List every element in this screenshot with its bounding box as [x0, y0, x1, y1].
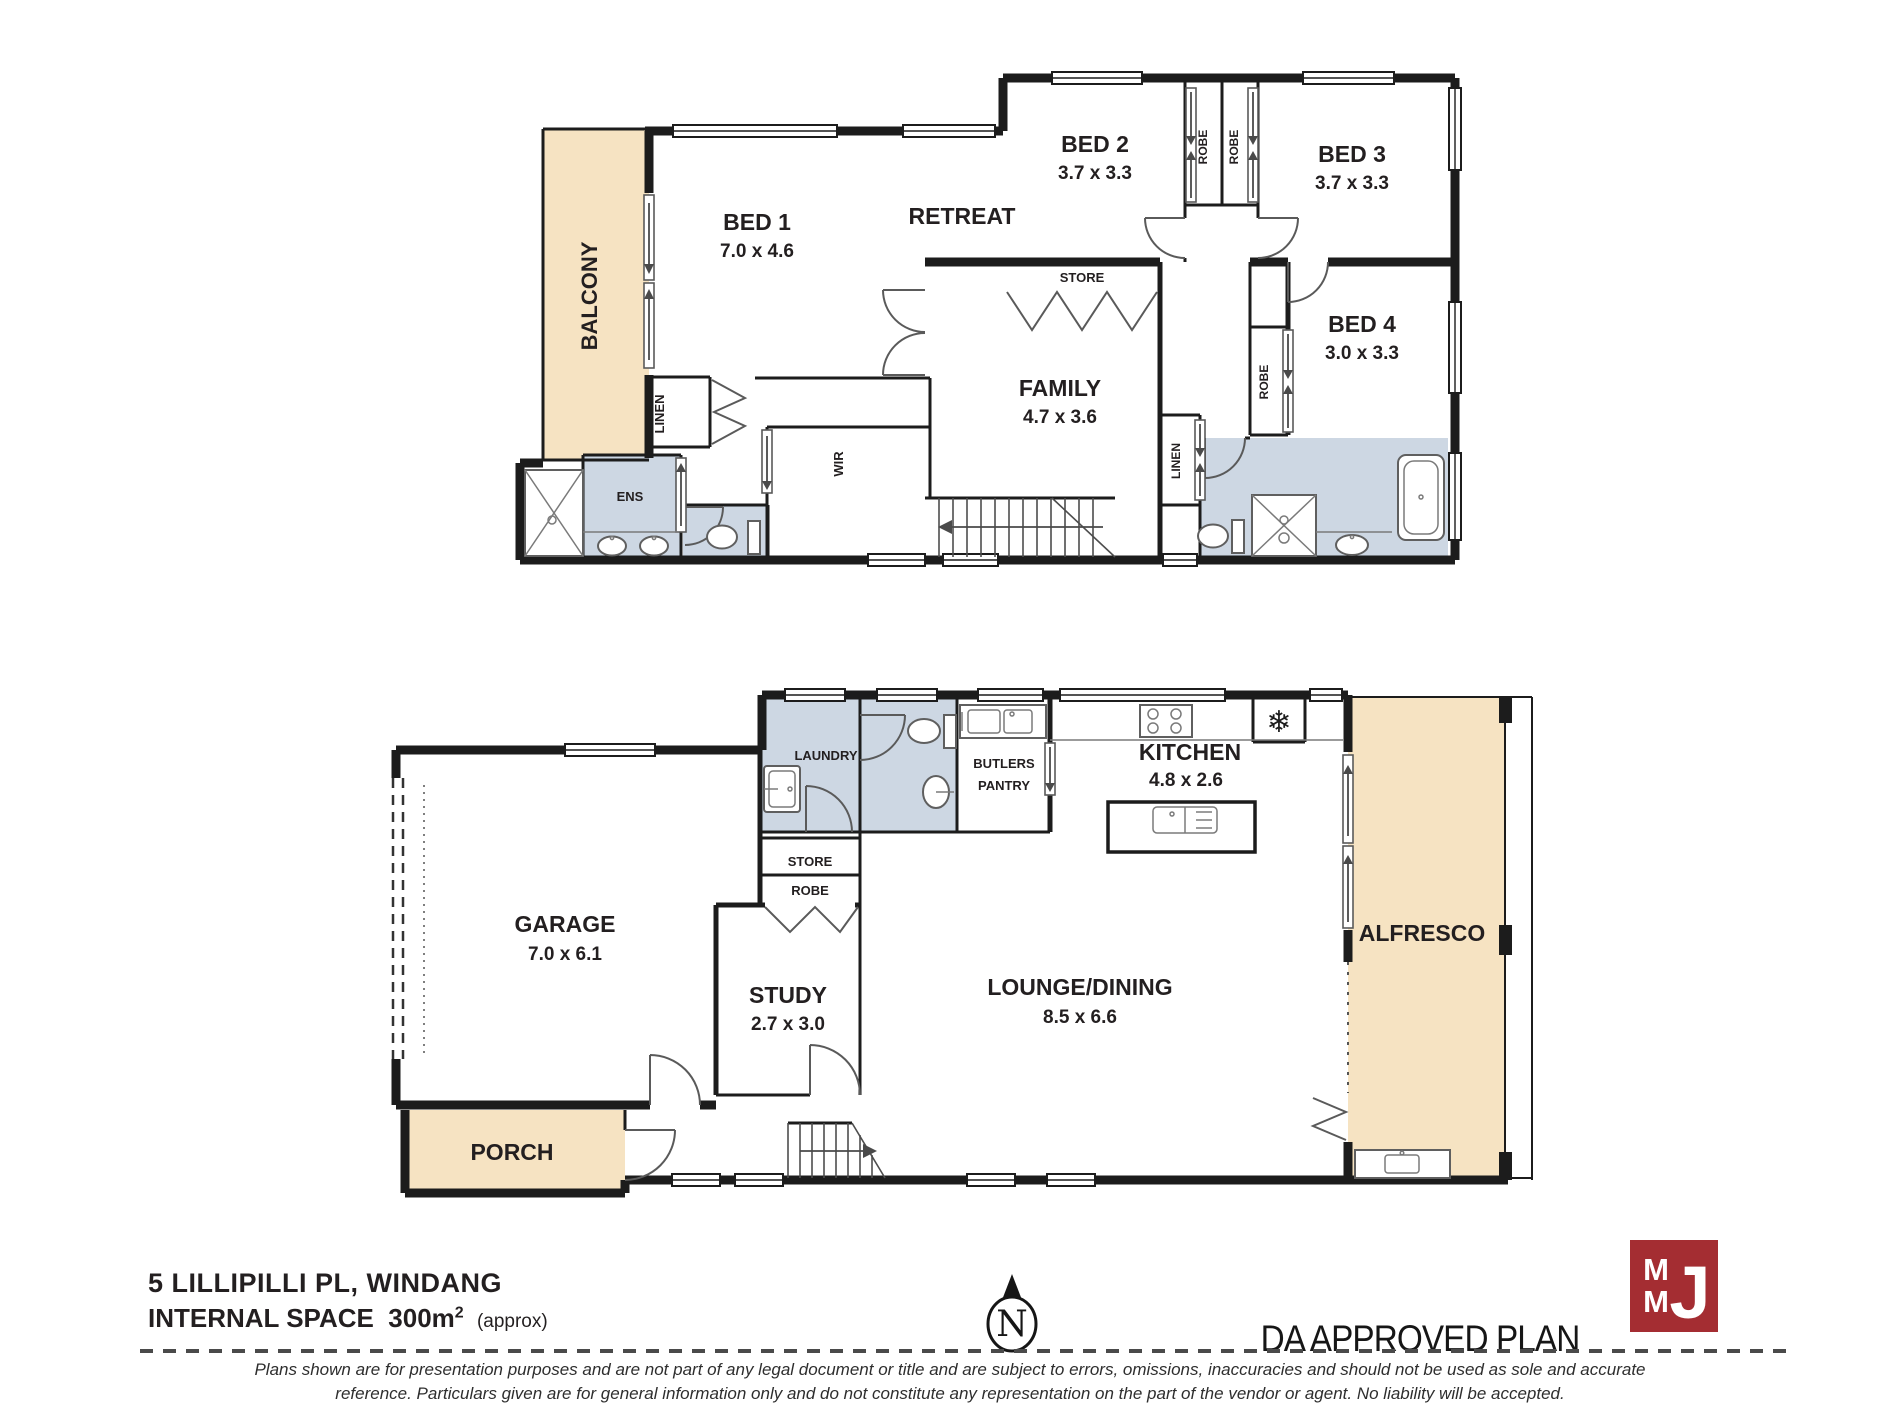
- floorplan-page: BALCONY BED 1 7.0 x 4.6 RETREAT BED 2 3.…: [0, 0, 1900, 1425]
- room-label-bed4: BED 4: [1328, 311, 1396, 337]
- room-label-robe-bed3: ROBE: [1227, 130, 1241, 165]
- internal-space-sup: 2: [455, 1304, 464, 1321]
- internal-space-value: 300m: [388, 1303, 455, 1333]
- room-label-family: FAMILY: [1019, 375, 1101, 401]
- room-label-laundry: LAUNDRY: [794, 748, 857, 763]
- room-dims-bed3: 3.7 x 3.3: [1315, 173, 1389, 194]
- room-label-robe-lower: ROBE: [791, 883, 829, 898]
- robe-bed3-sliding-door: [1248, 88, 1258, 202]
- logo-letter-j: J: [1669, 1251, 1710, 1332]
- garage-internal-door: [650, 1055, 700, 1105]
- room-label-lounge-dining: LOUNGE/DINING: [987, 974, 1172, 1000]
- store-bifold-doors: [1007, 292, 1157, 330]
- study-door: [810, 1045, 860, 1095]
- robe-bed2-sliding-door: [1186, 88, 1196, 202]
- room-label-kitchen: KITCHEN: [1139, 739, 1241, 765]
- room-label-linen-left: LINEN: [652, 395, 667, 434]
- logo-letter-m2: M: [1643, 1284, 1669, 1319]
- upper-stairs: [938, 498, 1115, 557]
- dashed-separator: [140, 1349, 1792, 1353]
- bed3-door: [1258, 218, 1298, 258]
- room-label-pantry: PANTRY: [978, 778, 1030, 793]
- retreat-double-door-lower: [883, 333, 925, 375]
- alfresco-sink-bench: [1355, 1150, 1450, 1178]
- room-dims-bed1: 7.0 x 4.6: [720, 241, 794, 262]
- room-label-butlers: BUTLERS: [973, 756, 1035, 771]
- garage-door: [388, 778, 424, 1059]
- room-label-linen-hall: LINEN: [1169, 443, 1183, 479]
- lower-stairs: [788, 1123, 885, 1178]
- internal-space-approx: (approx): [477, 1311, 548, 1332]
- property-address: 5 LILLIPILLI PL, WINDANG: [148, 1268, 502, 1299]
- butlers-pantry-sink: [960, 705, 1046, 738]
- alfresco-post: [1499, 1152, 1512, 1180]
- alfresco-bifold-stack: [1313, 1098, 1346, 1140]
- bed4-door: [1288, 262, 1328, 302]
- room-label-robe-bed4: ROBE: [1257, 365, 1271, 400]
- bathroom-bathtub: [1398, 455, 1444, 540]
- room-label-balcony: BALCONY: [577, 241, 602, 350]
- alfresco-post: [1499, 697, 1512, 723]
- linen-bifold-doors: [712, 380, 745, 444]
- room-label-wir: WIR: [831, 451, 846, 477]
- wir-sliding-door: [762, 430, 772, 493]
- room-label-robe-bed2: ROBE: [1196, 130, 1210, 165]
- front-entry-door: [625, 1130, 675, 1180]
- disclaimer-line2: reference. Particulars given are for gen…: [0, 1384, 1900, 1404]
- alfresco-sliding-doors: [1343, 755, 1353, 928]
- room-dims-garage: 7.0 x 6.1: [528, 944, 602, 965]
- kitchen-cooktop: [1140, 705, 1192, 737]
- pantry-sliding-door: [1045, 743, 1055, 795]
- ensuite-shower: [525, 470, 583, 556]
- stairs-direction-arrow: [938, 520, 952, 534]
- laundry-sink: [764, 766, 800, 812]
- retreat-double-door-upper: [883, 290, 925, 332]
- linen-hall-sliding-door: [1195, 420, 1205, 500]
- room-label-bed2: BED 2: [1061, 131, 1129, 157]
- room-dims-bed2: 3.7 x 3.3: [1058, 163, 1132, 184]
- room-fills: [405, 129, 1505, 1193]
- stairs-direction-arrow: [863, 1144, 877, 1158]
- bed2-door: [1145, 218, 1185, 258]
- internal-space-line: INTERNAL SPACE 300m2 (approx): [148, 1303, 548, 1334]
- fridge-icon: ❄: [1266, 706, 1291, 739]
- mmj-logo: M M J: [1630, 1240, 1718, 1332]
- room-dims-study: 2.7 x 3.0: [751, 1014, 825, 1035]
- powder-fill: [860, 697, 957, 832]
- room-label-store-lower: STORE: [788, 854, 833, 869]
- room-label-store-upper: STORE: [1060, 270, 1105, 285]
- robe-bifold-doors-lower: [765, 907, 858, 932]
- kitchen-island: [1108, 802, 1255, 852]
- north-letter: N: [996, 1304, 1028, 1345]
- room-label-retreat: RETREAT: [909, 203, 1016, 229]
- room-label-study: STUDY: [749, 982, 827, 1008]
- room-label-ens: ENS: [617, 489, 644, 504]
- internal-space-label: INTERNAL SPACE: [148, 1303, 374, 1333]
- disclaimer-line1: Plans shown are for presentation purpose…: [0, 1360, 1900, 1380]
- room-label-alfresco: ALFRESCO: [1359, 920, 1486, 946]
- ensuite-sliding-door: [676, 458, 686, 532]
- bathroom-shower: [1252, 495, 1316, 556]
- room-dims-kitchen: 4.8 x 2.6: [1149, 770, 1223, 791]
- north-compass: N: [975, 1272, 1051, 1356]
- logo-letter-m1: M: [1643, 1252, 1669, 1287]
- room-label-porch: PORCH: [470, 1139, 553, 1165]
- room-dims-bed4: 3.0 x 3.3: [1325, 343, 1399, 364]
- floorplan-drawing: BALCONY BED 1 7.0 x 4.6 RETREAT BED 2 3.…: [0, 0, 1900, 1240]
- robe-bed4-sliding-door: [1283, 330, 1293, 432]
- room-label-bed1: BED 1: [723, 209, 791, 235]
- room-label-garage: GARAGE: [515, 911, 616, 937]
- room-dims-family: 4.7 x 3.6: [1023, 407, 1097, 428]
- da-approved-stamp: DA APPROVED PLAN: [1222, 1318, 1618, 1360]
- alfresco-post: [1499, 925, 1512, 955]
- room-dims-lounge-dining: 8.5 x 6.6: [1043, 1007, 1117, 1028]
- room-label-bed3: BED 3: [1318, 141, 1386, 167]
